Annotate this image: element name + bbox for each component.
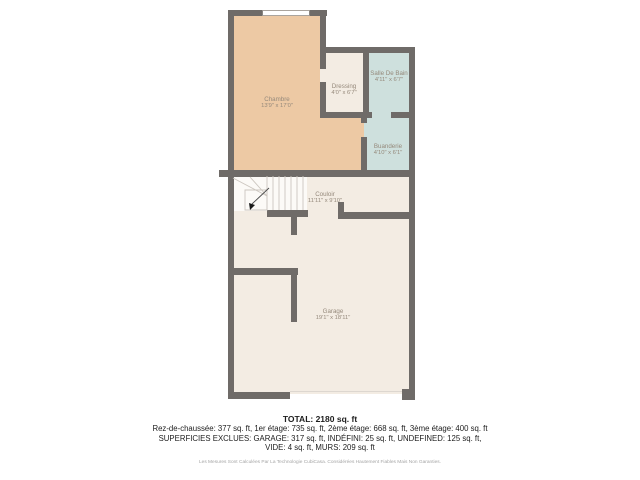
room-label-salle-de-bain: Salle De Bain 4'11" x 6'7" — [359, 70, 419, 84]
wall-buanderie-left-top — [361, 112, 367, 123]
disclaimer-text: Les Mesures Sont Calculées Par La Techno… — [0, 460, 640, 466]
room-label-couloir: Couloir 11'11" x 9'10" — [295, 191, 355, 205]
room-dims: 11'11" x 9'10" — [308, 198, 342, 205]
room-dims: 4'0" x 6'7" — [331, 90, 356, 97]
wall-couloir-bottom — [338, 212, 415, 219]
room-dims: 4'10" x 6'1" — [374, 150, 403, 157]
room-dims: 13'9" x 17'0" — [261, 103, 293, 110]
area-summary: TOTAL: 2180 sq. ft Rez-de-chaussée: 377 … — [0, 414, 640, 466]
room-label-garage: Garage 19'1" x 18'11" — [303, 308, 363, 322]
floor-plan-page: Chambre 13'9" x 17'0" Dressing 4'0" x 6'… — [0, 0, 640, 480]
room-dims: 4'11" x 6'7" — [375, 77, 403, 84]
room-label-chambre: Chambre 13'9" x 17'0" — [237, 96, 317, 110]
wall-bottom-left — [228, 392, 290, 399]
garage-door-line — [290, 391, 402, 392]
wall-left-room-bottom — [231, 268, 298, 275]
room-label-buanderie: Buanderie 4'10" x 6'1" — [358, 143, 418, 157]
room-label-dressing: Dressing 4'0" x 6'7" — [314, 83, 374, 97]
wall-right-outer — [409, 47, 415, 400]
excluded-areas-text2: VIDE: 4 sq. ft, MURS: 209 sq. ft — [0, 443, 640, 453]
window-icon — [262, 10, 310, 16]
excluded-areas-text: SUPERFICIES EXCLUES: GARAGE: 317 sq. ft,… — [0, 434, 640, 444]
wall-stub-below-stairs — [291, 217, 297, 235]
floor-areas-text: Rez-de-chaussée: 377 sq. ft, 1er étage: … — [0, 424, 640, 434]
room-name: Dressing — [332, 83, 356, 90]
wall-bottom-right-corner — [402, 389, 415, 400]
wall-garage-left-stub — [291, 275, 297, 322]
room-name: Couloir — [315, 191, 335, 198]
room-name: Garage — [323, 308, 344, 315]
room-dims: 19'1" x 18'11" — [316, 315, 351, 322]
total-area-text: TOTAL: 2180 sq. ft — [0, 414, 640, 424]
wall-mid-horizontal-right — [391, 112, 415, 118]
room-name: Chambre — [264, 96, 289, 103]
room-name: Buanderie — [374, 143, 402, 150]
room-name: Salle De Bain — [370, 70, 408, 77]
room-area-chambre — [231, 13, 326, 176]
wall-chambre-right-upper — [320, 10, 326, 69]
